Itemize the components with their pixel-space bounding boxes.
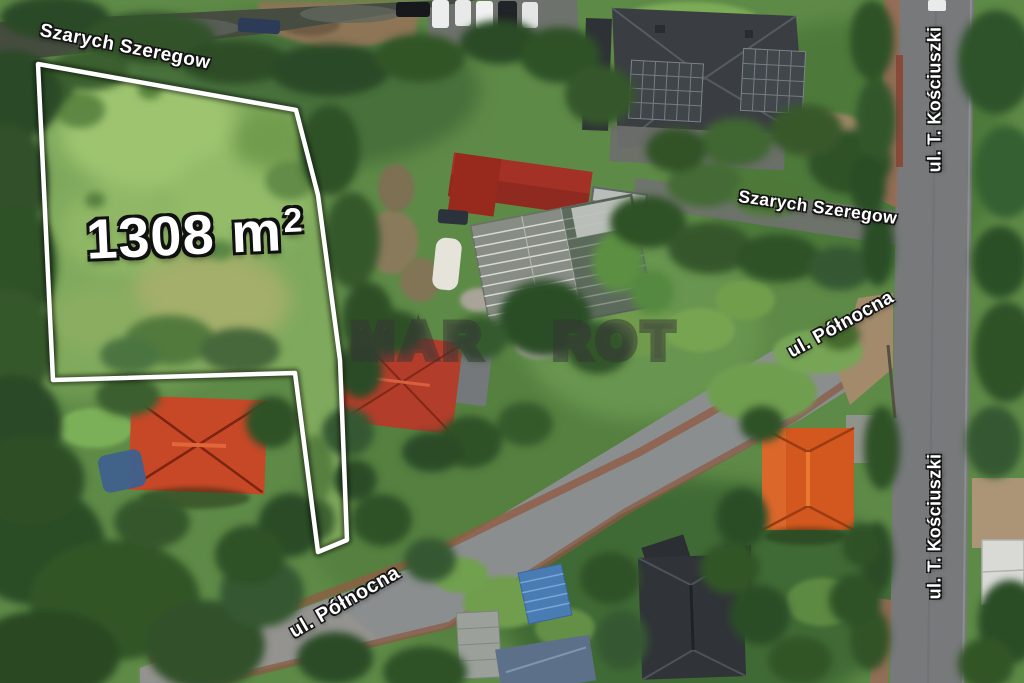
street-label-ul-t-kosciuszki-top: ul. T. Kościuszki xyxy=(925,25,946,175)
plot-area-exponent: 2 xyxy=(283,201,305,240)
plot-area-label: 1308 m2 xyxy=(85,197,305,271)
watermark: MAR ROT xyxy=(352,312,680,370)
street-label-ul-t-kosciuszki-bottom: ul. T. Kościuszki xyxy=(925,452,946,602)
plot-area-value: 1308 m xyxy=(85,199,283,270)
satellite-map: MAR ROT Szarych Szeregow Szarych Szerego… xyxy=(0,0,1024,683)
parked-car-dark xyxy=(438,209,469,225)
